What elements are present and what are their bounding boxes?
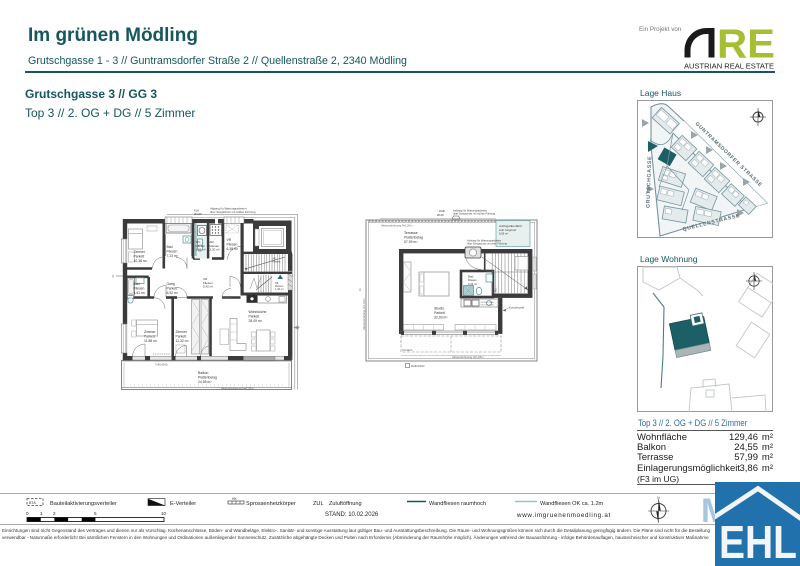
svg-text:Fliesen: Fliesen (468, 278, 477, 282)
svg-text:Parkett: Parkett (134, 255, 145, 259)
svg-text:6,52 m²: 6,52 m² (167, 291, 179, 295)
svg-text:Parkett: Parkett (249, 315, 260, 319)
svg-text:Zimmer: Zimmer (144, 330, 156, 334)
svg-text:6,38 m²: 6,38 m² (227, 247, 239, 251)
svg-text:7x45 Ø-65: 7x45 Ø-65 (155, 363, 168, 367)
svg-text:ZUL: ZUL (495, 287, 498, 292)
svg-text:Vordach: Vordach (402, 348, 413, 352)
svg-text:RAB Ø100: RAB Ø100 (411, 364, 425, 368)
svg-text:VR: VR (227, 238, 232, 242)
svg-text:Sprossenheizkörper: Sprossenheizkörper (246, 501, 296, 507)
svg-text:über Steigschutz mit Außen Füh: über Steigschutz mit Außen Führung (210, 210, 256, 214)
svg-text:Wohnküche: Wohnküche (249, 310, 267, 314)
svg-text:57,99 m²: 57,99 m² (404, 240, 418, 244)
svg-text:X: X (359, 288, 362, 292)
svg-text:0: 0 (26, 511, 29, 516)
svg-text:2: 2 (53, 511, 56, 516)
svg-text:Absturzsicherung H=1,00m: Absturzsicherung H=1,00m (381, 224, 412, 228)
svg-text:E-Verteiler: E-Verteiler (170, 501, 196, 507)
svg-text:Bauteilaktivierungsverteiler: Bauteilaktivierungsverteiler (50, 501, 117, 507)
svg-text:5: 5 (94, 511, 97, 516)
svg-text:Fliesen: Fliesen (272, 260, 281, 264)
svg-text:Studio: Studio (434, 307, 444, 311)
svg-text:Parkett: Parkett (434, 311, 445, 315)
svg-text:N: N (657, 496, 660, 500)
svg-text:Absturzsicherung H=1,00m: Absturzsicherung H=1,00m (452, 355, 483, 359)
svg-text:über Steigschutz mit Außen Füh: über Steigschutz mit Außen Führung (453, 212, 496, 216)
svg-text:7,23 m²: 7,23 m² (167, 254, 179, 258)
svg-text:Gang: Gang (167, 282, 175, 286)
svg-text:Fliesen: Fliesen (167, 250, 178, 254)
svg-text:Fliesen: Fliesen (227, 243, 238, 247)
svg-text:Absturzsicherung H=1,02m: Absturzsicherung H=1,02m (221, 387, 254, 391)
svg-text:Ø100: Ø100 (437, 213, 444, 217)
svg-text:Balkon: Balkon (198, 371, 208, 375)
svg-text:Parkett: Parkett (144, 335, 155, 339)
svg-text:28,09 m²: 28,09 m² (249, 319, 263, 323)
svg-text:6,56 m²: 6,56 m² (499, 232, 508, 236)
svg-text:24,55 m²: 24,55 m² (198, 380, 212, 384)
svg-text:2,30 m²: 2,30 m² (210, 248, 220, 252)
svg-text:Ø4,55: Ø4,55 (194, 212, 202, 216)
svg-text:Bad: Bad (468, 275, 474, 279)
svg-text:11,88 m²: 11,88 m² (144, 339, 158, 343)
svg-text:OK CH +0,95: OK CH +0,95 (481, 305, 495, 307)
svg-text:BTA: BTA (29, 501, 36, 505)
svg-text:Plattenbelag: Plattenbelag (198, 376, 217, 380)
svg-text:Terrasse: Terrasse (404, 231, 418, 235)
svg-text:Plattenbelag: Plattenbelag (404, 236, 423, 240)
svg-text:Fliesen: Fliesen (134, 287, 145, 291)
svg-text:10: 10 (161, 511, 167, 516)
svg-text:Bad: Bad (167, 245, 173, 249)
svg-text:Parkett: Parkett (176, 335, 187, 339)
svg-text:10,38 m²: 10,38 m² (134, 259, 148, 263)
svg-text:32,93 m²: 32,93 m² (434, 316, 448, 320)
svg-text:X: X (112, 275, 115, 279)
svg-text:Absturzsicherung H=1,00m: Absturzsicherung H=1,00m (362, 299, 366, 330)
svg-text:Wandfliesen OK ca. 1.2m: Wandfliesen OK ca. 1.2m (540, 501, 604, 507)
svg-text:exkl. berg/und: exkl. berg/und (499, 228, 516, 232)
svg-text:4,61 m²: 4,61 m² (134, 291, 146, 295)
svg-text:über Steigschutz mit seitl. Fü: über Steigschutz mit seitl. Führung (467, 242, 507, 246)
svg-text:Zuluftöffnung: Zuluftöffnung (329, 501, 362, 507)
svg-text:1,98 m²: 1,98 m² (196, 248, 206, 252)
svg-text:AUSTRIAN REAL ESTATE: AUSTRIAN REAL ESTATE (684, 62, 774, 71)
svg-text:Zimmer: Zimmer (134, 250, 146, 254)
svg-text:11,32 m²: 11,32 m² (176, 339, 190, 343)
svg-text:OK HÖ +0,90: OK HÖ +0,90 (481, 301, 495, 304)
svg-text:Bad: Bad (134, 282, 140, 286)
svg-text:Parkett: Parkett (167, 287, 178, 291)
svg-text:1,46 m²: 1,46 m² (275, 287, 284, 291)
svg-text:1: 1 (40, 511, 43, 516)
svg-text:Aufzugsüberfahrt: Aufzugsüberfahrt (499, 224, 522, 228)
svg-text:Wandfliesen raumhoch: Wandfliesen raumhoch (429, 501, 486, 507)
svg-text:HK: HK (232, 497, 237, 501)
svg-text:Zimmer: Zimmer (176, 330, 188, 334)
svg-text:ZUL: ZUL (313, 501, 324, 507)
svg-text:Konsolenprofil: Konsolenprofil (509, 307, 525, 310)
svg-text:EHL: EHL (719, 516, 797, 566)
svg-text:5,42 m²: 5,42 m² (203, 285, 213, 289)
svg-text:RE: RE (717, 22, 775, 67)
